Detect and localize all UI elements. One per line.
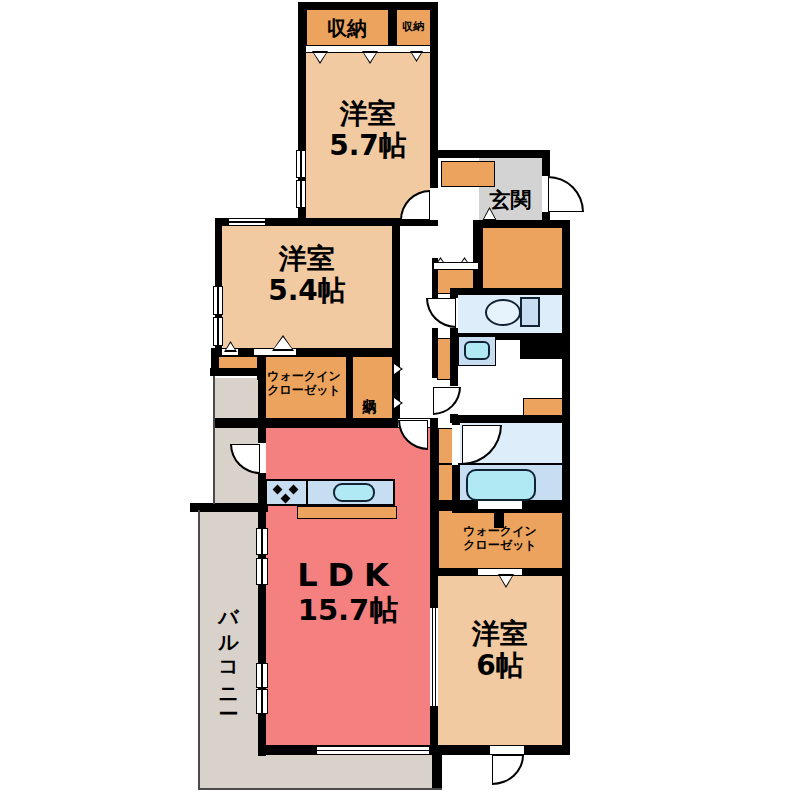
wall: [452, 415, 460, 425]
wall: [450, 288, 458, 298]
window: [256, 528, 268, 555]
washbasin-sink-icon: [464, 341, 490, 360]
wall: [190, 503, 268, 512]
balcony-bottom: [200, 755, 432, 788]
kitchen-base-counter: [297, 506, 397, 519]
wall: [432, 755, 442, 788]
door-arc-toilet: [426, 298, 456, 328]
storage-top-right-label: 収納: [396, 21, 430, 34]
closet-opening: [478, 501, 522, 509]
window: [213, 317, 223, 346]
wall: [562, 222, 570, 513]
door-opening: [490, 746, 524, 754]
bedroom-5-4-label: 洋室 5.4帖: [222, 243, 392, 307]
shoe-cabinet: [482, 227, 564, 290]
wall: [542, 150, 550, 176]
window: [256, 689, 268, 714]
toilet-tank-icon: [520, 297, 540, 327]
walk-in-closet-2-label: ウォークイン クローゼット: [438, 525, 562, 553]
kitchen-counter-divider: [306, 479, 308, 506]
floor-plan: 収納 収納 洋室 5.7帖 玄関 洋室 5.4帖 ウォークイン クローゼット 収…: [0, 0, 800, 800]
walk-in-closet-1-label: ウォークイン クローゼット: [262, 370, 346, 398]
bedroom-5-7-label: 洋室 5.7帖: [306, 98, 430, 162]
bedroom-6-label: 洋室 6帖: [438, 618, 562, 682]
sliding-door: [430, 608, 438, 706]
balcony-outline: [198, 788, 442, 790]
balcony-outline: [198, 510, 200, 790]
wall: [432, 328, 438, 378]
door-arc-washroom: [433, 387, 461, 415]
wall: [473, 220, 482, 295]
wall: [388, 8, 396, 46]
wall: [562, 500, 570, 755]
wall: [438, 150, 550, 158]
wall: [215, 348, 400, 356]
door-opening: [430, 188, 438, 220]
wall: [450, 415, 570, 423]
bathtub-icon: [466, 469, 536, 501]
window: [256, 663, 268, 688]
closet-door-track: [433, 262, 479, 270]
balcony-label: バルコニー: [217, 580, 240, 720]
kitchen-sink-icon: [333, 483, 375, 502]
door-opening: [452, 425, 460, 465]
storage-top-left-label: 収納: [306, 17, 388, 40]
window: [296, 180, 306, 208]
wall: [298, 2, 438, 9]
wall: [473, 220, 570, 228]
service-balcony: [215, 378, 258, 504]
door-arc-bedroom-6: [492, 755, 524, 785]
wall: [210, 368, 266, 376]
duct-space: [520, 333, 568, 359]
toilet-bowl-icon: [485, 299, 521, 326]
window: [228, 218, 266, 226]
wall: [450, 288, 570, 295]
balcony-outline: [213, 376, 215, 504]
window: [296, 150, 306, 178]
entrance-label: 玄関: [479, 188, 542, 212]
closet-mid-label: 収納: [362, 364, 378, 414]
cabinet-entrance: [441, 161, 495, 187]
sliding-window: [316, 746, 430, 755]
ldk-label: LDK 15.7帖: [266, 557, 430, 627]
bathroom-divider: [458, 463, 570, 465]
wall: [346, 356, 352, 418]
door-arc-entrance: [548, 176, 584, 212]
